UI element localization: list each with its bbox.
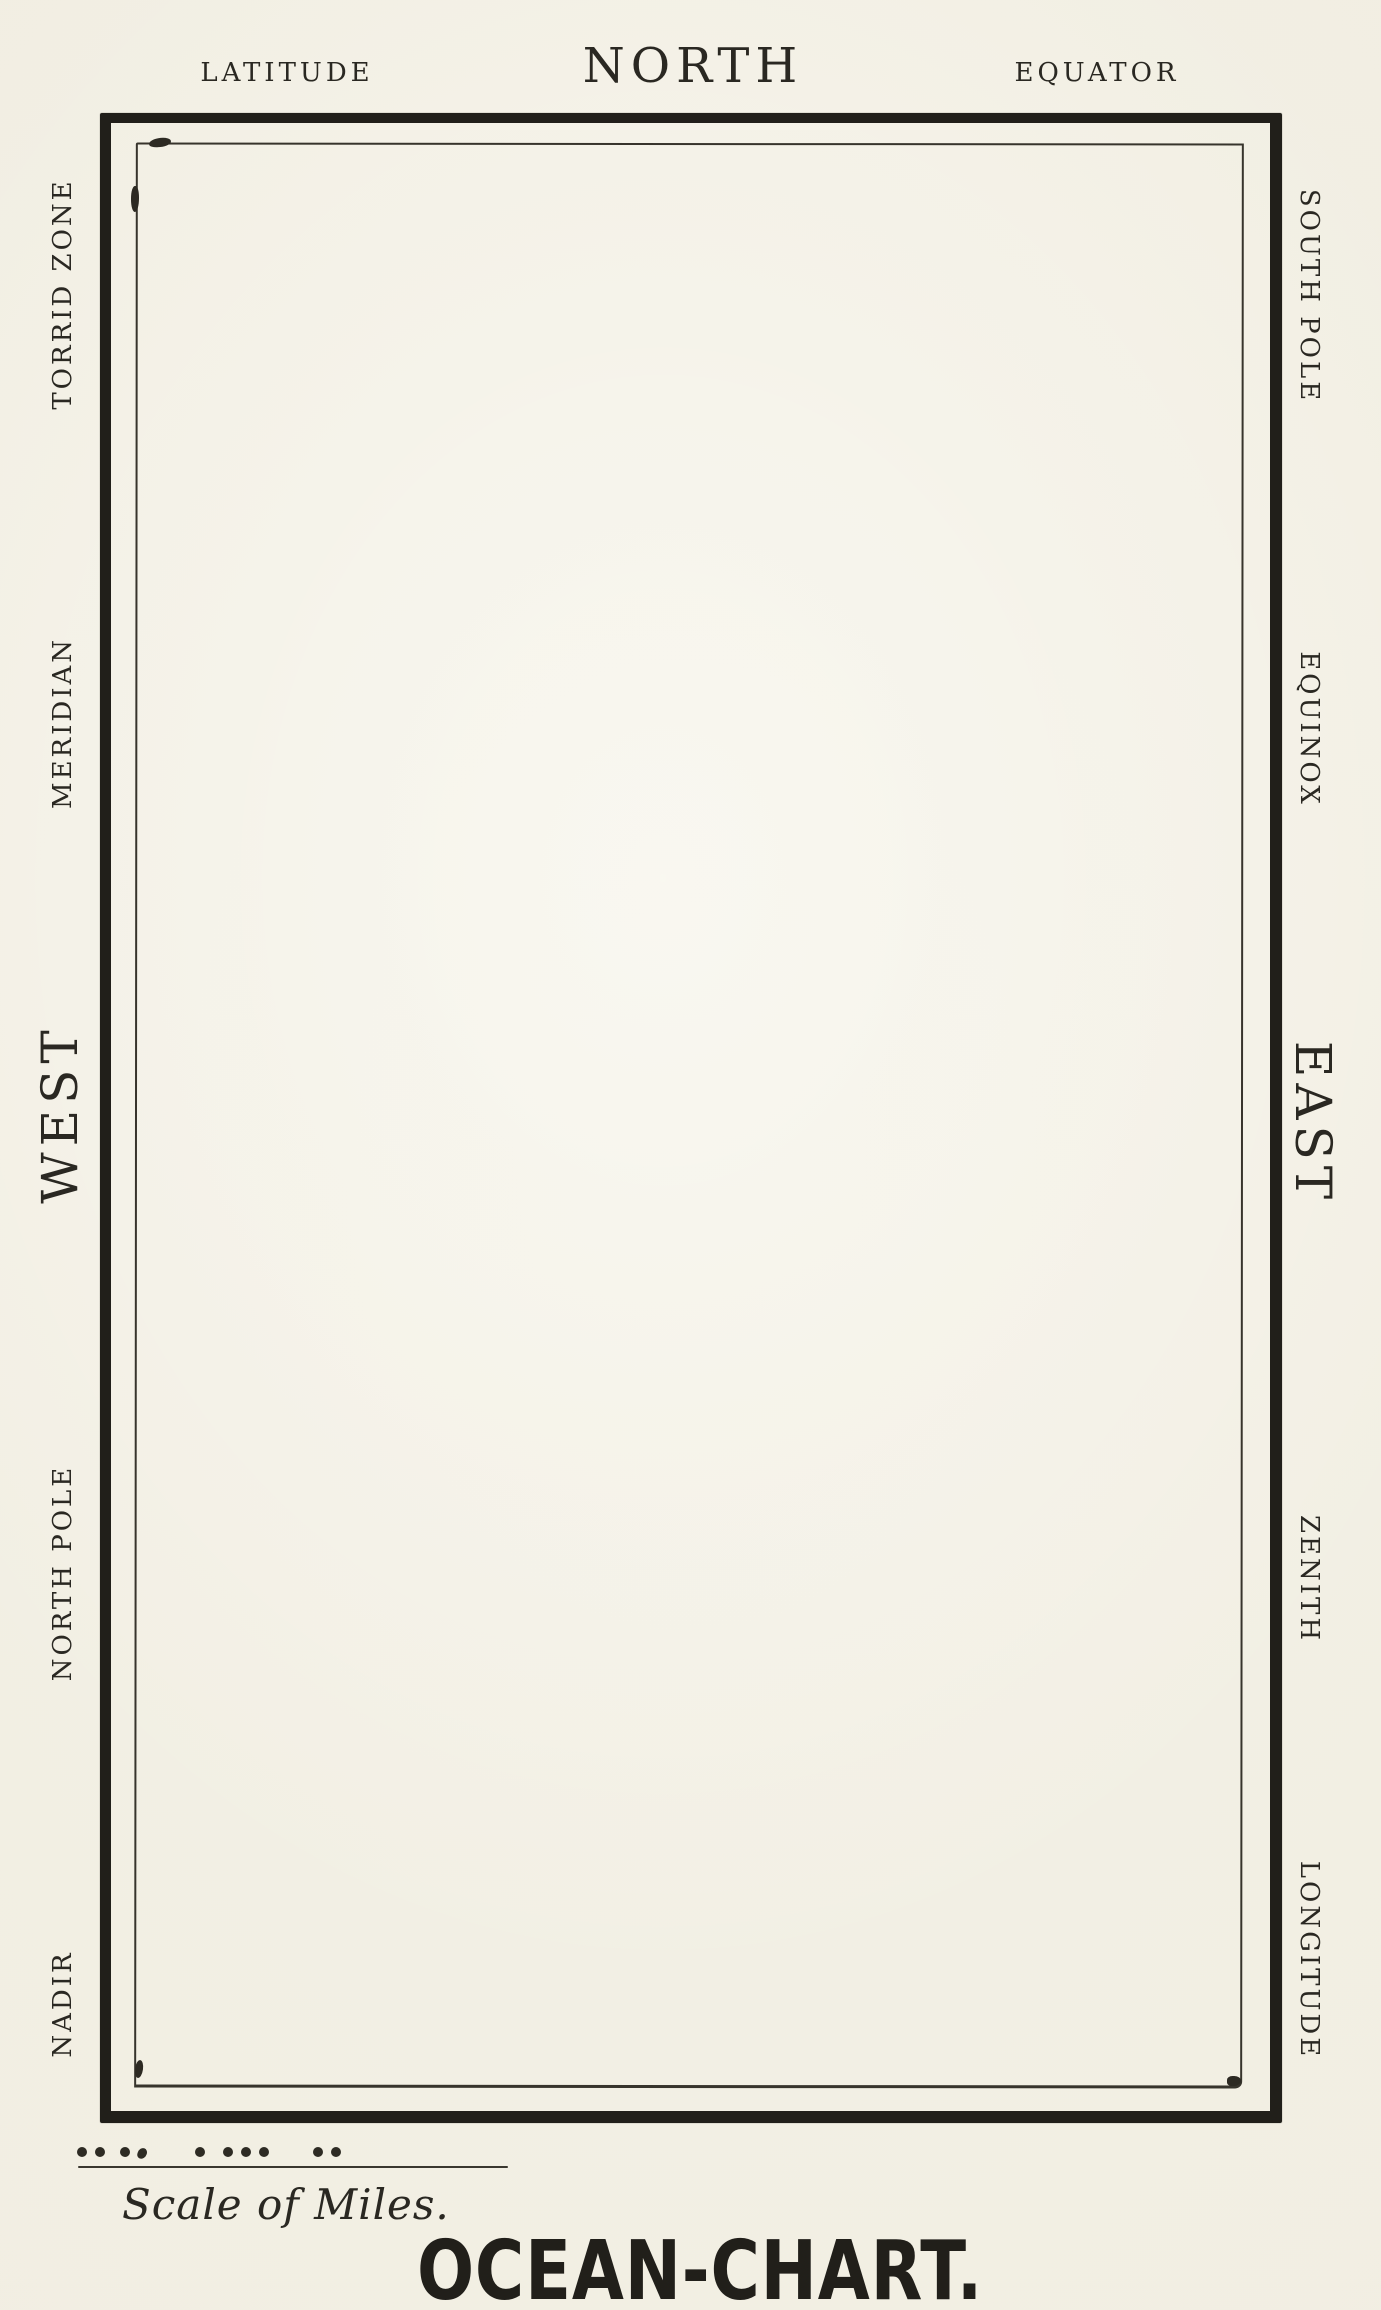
top-label-equator: EQUATOR [1015,58,1180,88]
scale-caption: Scale of Miles. [122,2180,450,2229]
right-label-zenith: ZENITH [1294,1515,1324,1643]
scale-dot [195,2147,205,2157]
blank-map-area [140,148,1236,2078]
left-label-west: WEST [31,1024,89,1204]
scale-dot [120,2147,130,2157]
scale-dot [223,2147,233,2157]
scale-dot-group [195,2147,205,2157]
right-label-equinox: EQUINOX [1294,651,1324,807]
scale-dot-group [120,2147,147,2158]
scale-dot-group [223,2147,269,2157]
scale-bar-line [78,2166,508,2168]
top-label-latitude: LATITUDE [200,58,373,88]
scale-dot [77,2147,87,2157]
scale-dot [331,2147,341,2157]
left-label-meridian: MERIDIAN [48,637,78,809]
scale-dot [259,2147,269,2157]
ocean-chart-title: OCEAN-CHART. [417,2224,983,2310]
scale-dot [95,2147,105,2157]
left-label-torrid-zone: TORRID ZONE [48,178,78,409]
right-label-south-pole: SOUTH POLE [1294,189,1324,403]
scale-dot-group [313,2147,341,2157]
scale-dot [136,2147,148,2160]
left-label-nadir: NADIR [48,1950,78,2057]
scale-dot [241,2147,251,2157]
page: LATITUDE NORTH EQUATOR TORRID ZONE MERID… [0,0,1381,2310]
right-label-east: EAST [1284,1041,1342,1205]
scale-dot-group [77,2147,105,2157]
top-label-north: NORTH [583,38,804,94]
right-label-longitude: LONGITUDE [1294,1861,1324,2059]
left-label-north-pole: NORTH POLE [48,1465,78,1682]
scale-dot [313,2147,323,2157]
